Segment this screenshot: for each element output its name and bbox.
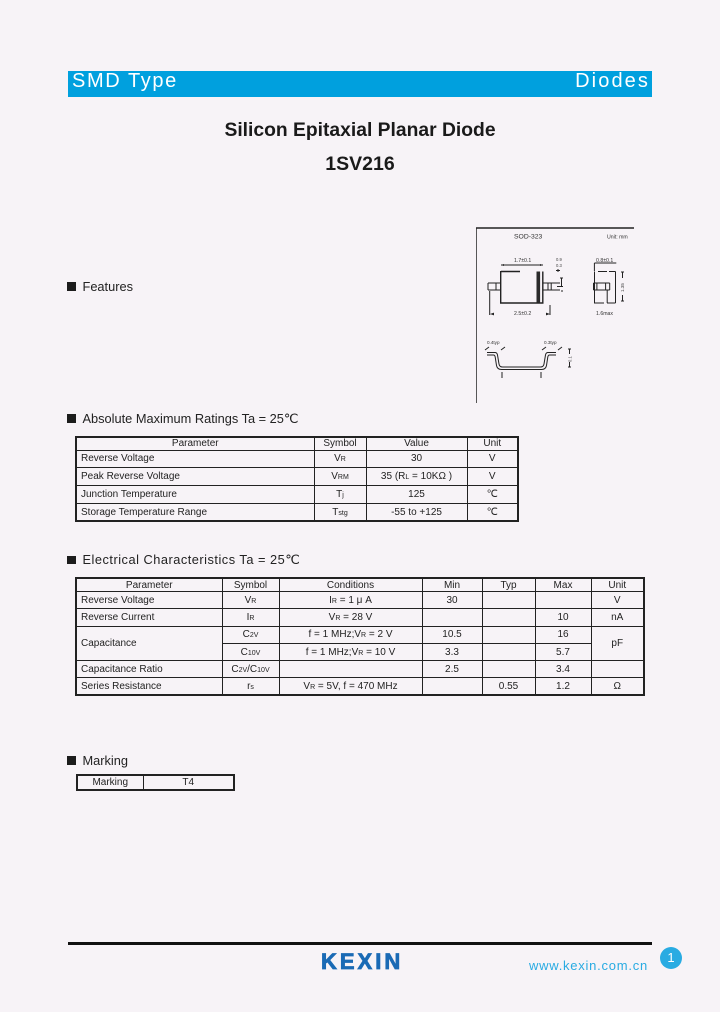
svg-text:1.6max: 1.6max [596,311,613,317]
svg-text:0.3typ: 0.3typ [544,340,557,345]
svg-text:SOD-323: SOD-323 [514,234,543,241]
svg-text:1.35: 1.35 [620,283,625,292]
svg-text:0.1: 0.1 [568,356,573,362]
svg-text:Unit: mm: Unit: mm [607,235,628,241]
svg-text:2.5±0.2: 2.5±0.2 [514,311,531,317]
svg-text:0.9: 0.9 [556,257,562,262]
svg-text:0.3: 0.3 [556,263,562,268]
svg-text:1.7±0.1: 1.7±0.1 [514,258,531,264]
svg-text:0.4typ: 0.4typ [487,340,500,345]
